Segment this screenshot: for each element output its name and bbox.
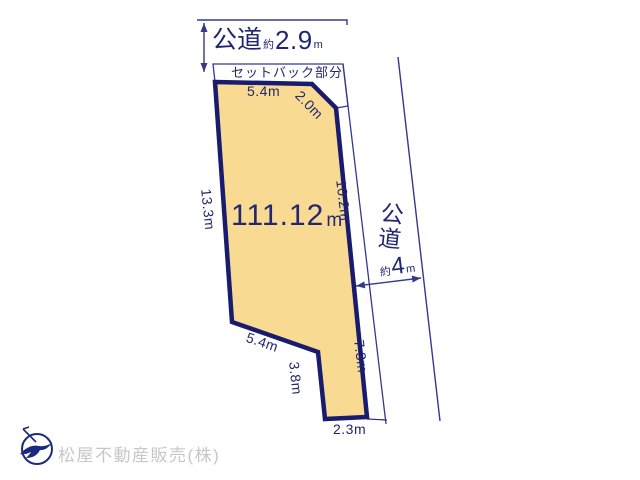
dim-top: 5.4m (247, 84, 280, 98)
company-name: 松屋不動産販売(株) (58, 447, 220, 464)
bottom-extension-line (367, 419, 387, 420)
north-road-name: 公道 (212, 28, 262, 53)
east-road-approx: 約 (379, 267, 392, 281)
plot-area-unit-sup: 2 (343, 208, 349, 219)
dim-right-lower: 7.3m (352, 339, 370, 374)
dim-bottom: 2.3m (333, 422, 366, 436)
east-road-char-1: 公 (379, 201, 404, 228)
plot-area-label: 111.12 m2 (231, 201, 348, 231)
north-road-width-value: 2.9 (275, 27, 313, 53)
plot-area-unit: m2 (326, 211, 347, 231)
land-plot-diagram: 公道 約 2.9 m セットバック部分 5.4m 2.0m 13.3m 10.2… (0, 0, 640, 480)
north-road-edge-line (197, 20, 347, 25)
setback-label: セットバック部分 (231, 66, 343, 79)
plot-area-unit-base: m (326, 210, 342, 231)
north-road-approx: 約 (263, 40, 274, 53)
plot-area-value: 111.12 (231, 201, 324, 231)
east-road-width-label: 約 4 m (378, 253, 416, 281)
east-road-edge-line (398, 57, 440, 421)
north-road-unit: m (314, 40, 323, 53)
company-logo (16, 426, 56, 468)
north-road-label: 公道 約 2.9 m (212, 27, 323, 53)
east-road-width-value: 4 (390, 254, 406, 279)
bird-icon (20, 443, 52, 458)
dim-left: 13.3m (199, 188, 217, 231)
east-road-unit: m (406, 264, 417, 278)
east-road-char-2: 道 (377, 226, 402, 253)
dim-notch-vertical: 3.8m (287, 361, 304, 395)
